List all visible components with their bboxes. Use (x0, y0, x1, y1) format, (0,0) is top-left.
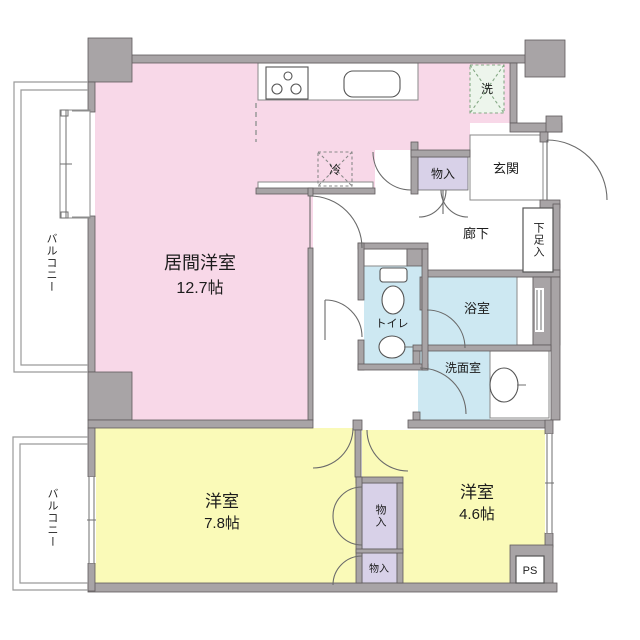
wall-mid-east (408, 420, 551, 428)
balcony-top-label: バルコニー (45, 233, 58, 293)
storage-hall-doors (419, 190, 468, 217)
wall-kitchen-partition (256, 188, 375, 194)
toilet-label: トイレ (376, 318, 409, 330)
front-door (547, 140, 607, 200)
shoe-cabinet-label: 下足入 (532, 222, 545, 258)
stove (266, 67, 308, 99)
kitchen-door (373, 152, 411, 190)
bathtub-ledge (517, 277, 533, 345)
wall-west-mid (88, 216, 95, 372)
wall-78-west-upper (88, 428, 95, 477)
living-room-area: 12.7帖 (176, 279, 223, 297)
toilet-shelf (364, 249, 407, 266)
wall-bath-wash-divider (413, 345, 551, 351)
bedroom-46-label: 洋室 (460, 483, 494, 502)
wall-closet-east (397, 483, 403, 583)
living-door (310, 196, 362, 248)
wall-west-upper (88, 82, 95, 112)
wall-south (88, 583, 557, 592)
wall-washer-niche-east (510, 63, 517, 123)
wall-closet-west (356, 477, 362, 583)
wall-closet-top (356, 477, 403, 483)
wall-closet-divider (356, 549, 403, 553)
balcony-bottom-label: バルコニー (46, 488, 59, 548)
wall-shoe-back (553, 204, 560, 276)
wall-46-east-upper (545, 420, 553, 434)
wall-storage-hall-top (411, 150, 470, 157)
pillar-top-right (525, 40, 565, 77)
pipe-space-label: PS (523, 565, 538, 577)
wall-78-west-lower (88, 563, 95, 591)
storage-hall-label: 物入 (431, 167, 455, 181)
entrance-label: 玄関 (493, 161, 519, 176)
hallway-label: 廊下 (463, 226, 489, 241)
storage-lower-label: 物入 (369, 562, 389, 575)
wall-living-east-stub (308, 188, 313, 196)
wall-washroom-west-b (413, 412, 420, 420)
wall-toilet-south (358, 364, 428, 370)
wall-living-east (308, 248, 313, 420)
bedroom-46-window (545, 434, 554, 533)
wall-toilet-top (358, 243, 428, 249)
wall-bedroom-divider (355, 430, 361, 477)
wall-mid-horizontal (88, 420, 313, 428)
wall-mid-stub (353, 420, 362, 430)
toilet-door (325, 300, 362, 340)
wall-east-outer (551, 277, 560, 420)
bedroom-78-area: 7.8帖 (204, 515, 240, 532)
bedroom-78-label: 洋室 (205, 492, 239, 511)
wall-southwest-block (88, 372, 132, 420)
pillar-top-left (88, 38, 132, 82)
washer-label: 洗 (481, 82, 493, 96)
wall-entrance-step (546, 116, 562, 132)
bathroom-window (535, 288, 544, 332)
bedroom-46-area: 4.6帖 (459, 506, 495, 523)
bathroom-label: 浴室 (464, 301, 490, 316)
washroom-label: 洗面室 (445, 360, 481, 375)
floor-plan-svg: 居間洋室 12.7帖 洋室 7.8帖 洋室 4.6帖 バルコニー バルコニー 玄… (0, 0, 640, 640)
living-room-label: 居間洋室 (164, 253, 236, 273)
refrigerator-label: 冷 (329, 163, 341, 177)
toilet-duct-box (407, 249, 422, 266)
floor-plan: 居間洋室 12.7帖 洋室 7.8帖 洋室 4.6帖 バルコニー バルコニー 玄… (0, 0, 640, 640)
storage-upper-label: 物入 (374, 503, 387, 528)
bedroom-78-window (87, 477, 96, 563)
kitchen-sink (344, 71, 400, 97)
wall-north (130, 55, 530, 63)
wall-toilet-west-a (358, 243, 364, 300)
